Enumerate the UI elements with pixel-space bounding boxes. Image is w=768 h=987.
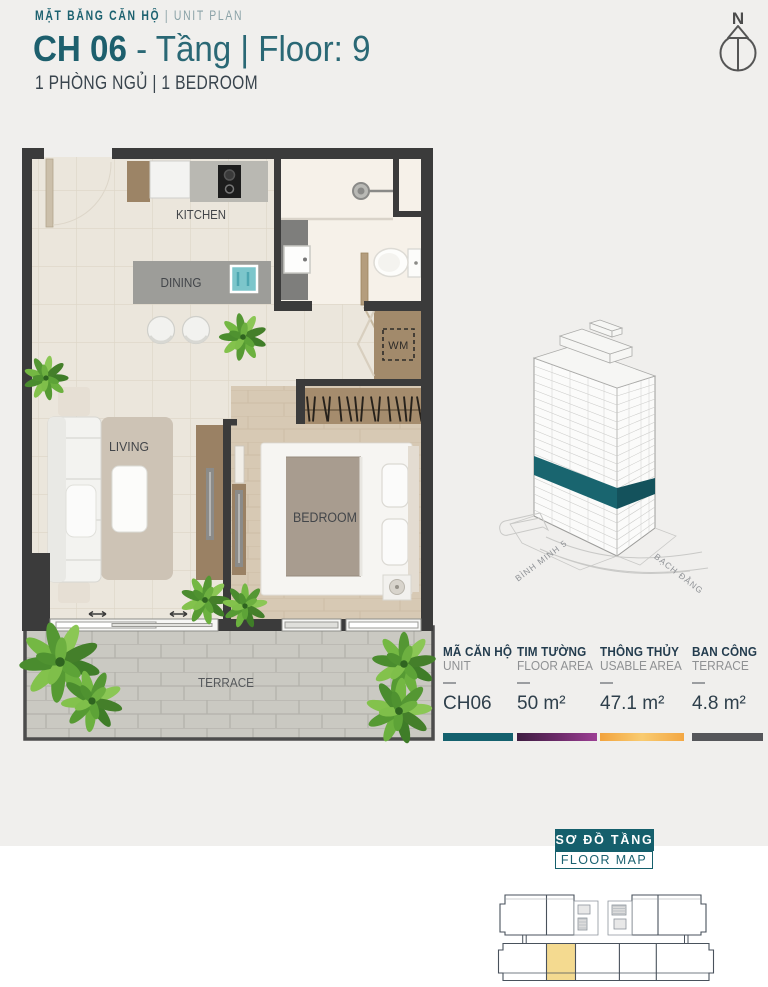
svg-text:BÌNH MINH 5: BÌNH MINH 5 [513,538,569,584]
svg-text:TERRACE: TERRACE [198,676,254,690]
svg-text:DINING: DINING [161,275,202,290]
svg-text:LIVING: LIVING [109,439,149,454]
svg-text:WM: WM [388,340,409,352]
svg-text:KITCHEN: KITCHEN [176,207,226,222]
svg-text:BEDROOM: BEDROOM [293,510,357,525]
